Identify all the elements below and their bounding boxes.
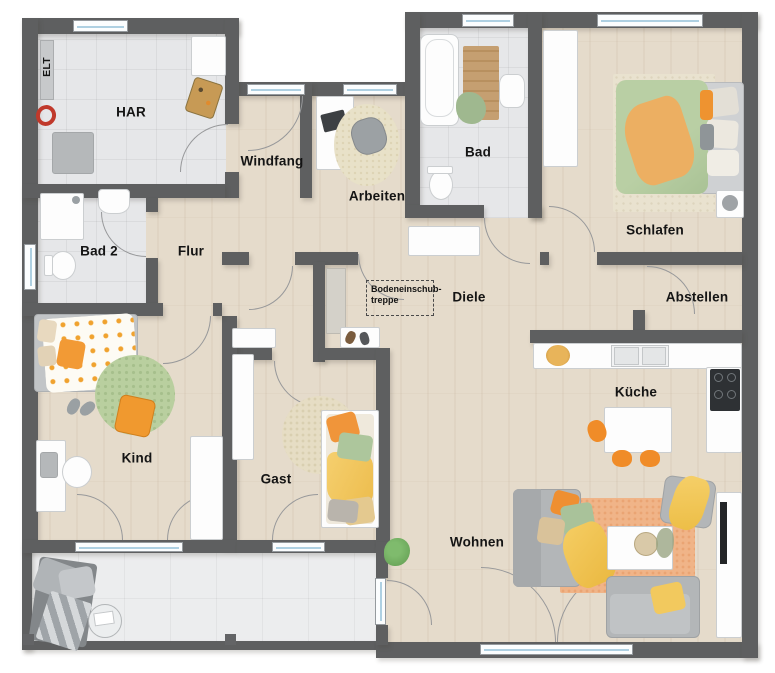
wall: [320, 348, 378, 360]
floor-cushion: [113, 394, 156, 439]
room-label-kind: Kind: [122, 451, 153, 466]
room-label-diele: Diele: [452, 290, 485, 305]
kitchen-chair-orange: [640, 450, 660, 467]
room-label-abstellen: Abstellen: [666, 290, 729, 305]
toilet: [429, 170, 453, 200]
magazine: [93, 611, 115, 627]
guest-shelf: [232, 354, 254, 460]
window: [343, 84, 397, 95]
room-label-gast: Gast: [261, 472, 292, 487]
bathroom-sink: [98, 189, 130, 214]
wall: [22, 18, 239, 34]
fruit-bowl: [546, 345, 570, 366]
wall: [742, 12, 758, 658]
room-label-elt: ELT: [41, 57, 53, 77]
terrace-post: [225, 634, 236, 645]
bed-pillow-gray: [700, 124, 714, 150]
room-label-bad2: Bad 2: [80, 244, 118, 259]
kitchen-table: [604, 407, 672, 453]
terrace-post: [23, 634, 34, 645]
wall: [376, 625, 388, 645]
window: [24, 244, 36, 290]
wall: [540, 252, 549, 265]
wardrobe: [543, 30, 578, 167]
kitchen-sink-basin: [642, 347, 666, 365]
cooktop-ring: [727, 373, 736, 382]
exterior: [0, 12, 22, 673]
window: [462, 14, 514, 27]
sofa-pillow-sand: [536, 516, 565, 545]
washing-machine: [191, 36, 226, 76]
wall: [213, 303, 222, 316]
bathtub-inner: [425, 39, 454, 117]
hall-cabinet: [408, 226, 480, 256]
wall: [405, 12, 758, 28]
lamp: [722, 195, 738, 211]
room-label-wohnen: Wohnen: [450, 535, 504, 550]
guest-sideboard: [232, 328, 276, 348]
attic-ladder-line1: Bodeneinschub-: [371, 284, 442, 294]
cooktop-ring: [714, 390, 723, 399]
kid-chair: [62, 456, 92, 488]
wall: [146, 198, 158, 212]
bed-pillow: [707, 150, 739, 176]
attic-ladder-annotation: Bodeneinschub- treppe: [366, 280, 434, 316]
entrance-door: [247, 84, 305, 95]
room-label-arbeiten: Arbeiten: [349, 189, 405, 204]
room-label-kueche: Küche: [615, 385, 657, 400]
shower-head: [72, 196, 80, 204]
french-door: [480, 644, 633, 655]
terrace-side-door: [375, 578, 386, 625]
bed-pillow-orange: [700, 90, 713, 120]
floor-plan: Bodeneinschub- treppe: [0, 0, 775, 673]
wall: [222, 252, 249, 265]
cooktop-ring: [727, 390, 736, 399]
wall: [225, 172, 239, 198]
room-label-flur: Flur: [178, 244, 204, 259]
exterior: [376, 658, 775, 673]
toilet: [50, 251, 76, 280]
room-label-windfang: Windfang: [241, 154, 304, 169]
storage-box: [52, 132, 94, 174]
towel-plant: [456, 92, 486, 124]
window: [597, 14, 703, 27]
tray: [634, 532, 658, 556]
exterior: [239, 12, 405, 82]
tall-cabinet: [326, 268, 346, 334]
cooktop-ring: [714, 373, 723, 382]
window: [73, 20, 128, 32]
daybed-pillow-green: [336, 432, 373, 462]
bathroom-sink: [499, 74, 525, 108]
daybed-pillow-gray: [327, 498, 359, 523]
room-label-har: HAR: [116, 105, 146, 120]
wall: [530, 330, 742, 343]
room-label-schlafen: Schlafen: [626, 223, 684, 238]
room-label-bad: Bad: [465, 145, 491, 160]
wall: [633, 310, 645, 330]
toilet-tank: [44, 255, 53, 276]
exterior: [0, 650, 376, 673]
exterior: [0, 0, 775, 12]
kid-wardrobe: [190, 436, 223, 540]
wall: [405, 205, 484, 218]
wall: [405, 12, 420, 205]
wall: [528, 12, 542, 218]
kid-pillow-orange: [56, 338, 86, 370]
kitchen-sink-basin: [614, 347, 639, 365]
attic-ladder-line2: treppe: [371, 295, 399, 305]
toilet-tank: [427, 166, 453, 174]
kid-pillow: [37, 319, 58, 343]
wall: [295, 252, 358, 265]
wall: [597, 252, 742, 265]
terrace-door-window: [75, 542, 183, 552]
tv: [720, 502, 727, 564]
wall: [313, 262, 325, 362]
kid-pillow: [37, 345, 57, 367]
terrace-door-window: [272, 542, 325, 552]
exterior: [758, 12, 775, 673]
kid-laptop: [40, 452, 58, 478]
wall: [225, 18, 239, 124]
kitchen-chair-orange: [612, 450, 632, 467]
